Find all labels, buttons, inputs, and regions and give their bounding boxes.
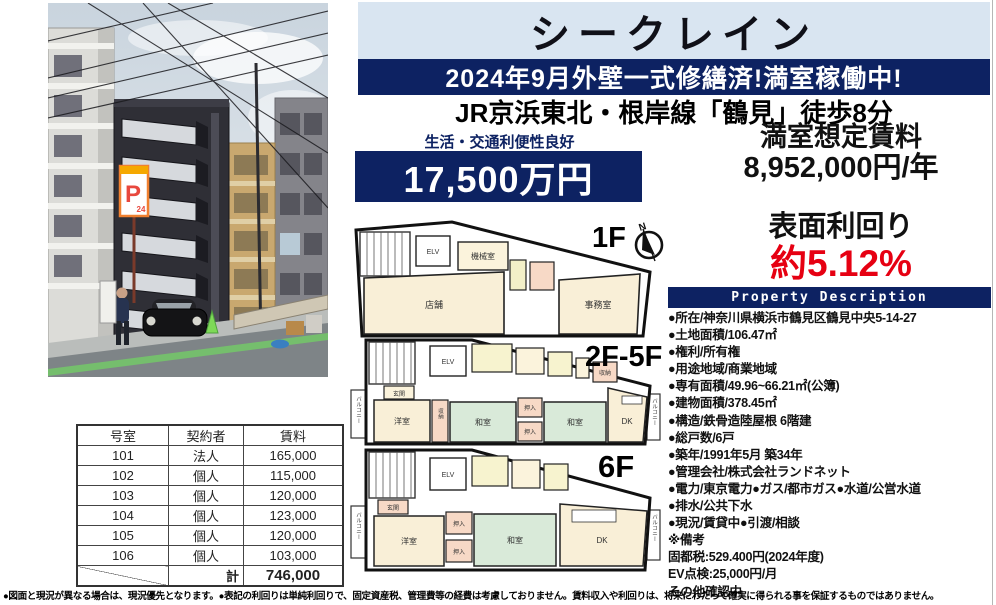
property-item: ●所在/神奈川県横浜市鶴見区鶴見中央5-14-27: [668, 310, 991, 327]
property-item: ●土地面積/106.47㎡: [668, 327, 991, 344]
balcony-left-label: バルコニー: [355, 512, 362, 540]
kitchen-counter: [572, 510, 616, 522]
property-title: シークレイン: [530, 2, 818, 60]
full-rent-value: 8,952,000円/年: [692, 152, 990, 184]
stairwell: [369, 342, 415, 384]
oshiire-1-label: 押入: [453, 520, 465, 528]
property-description-panel: Property Description ●所在/神奈川県横浜市鶴見区鶴見中央5…: [668, 287, 991, 601]
cell-rent: 120,000: [244, 486, 344, 506]
property-item: ●管理会社/株式会社ランドネット: [668, 464, 991, 481]
compass-n-label: N: [638, 222, 648, 234]
building-photo: P 24: [48, 3, 328, 377]
balcony-right-label: バルコニー: [651, 398, 658, 426]
oshiire-2-label: 押入: [524, 428, 536, 436]
table-row: 103 個人 120,000: [77, 486, 343, 506]
western-room-label: 洋室: [394, 416, 410, 426]
property-description-list: ●所在/神奈川県横浜市鶴見区鶴見中央5-14-27 ●土地面積/106.47㎡ …: [668, 308, 991, 601]
property-item: ●専有面積/49.96~66.21㎡(公簿): [668, 378, 991, 395]
closet-tall: [432, 400, 448, 442]
table-row: 102 個人 115,000: [77, 466, 343, 486]
cell-contractor: 個人: [169, 466, 244, 486]
balcony-right-label: バルコニー: [651, 514, 658, 542]
cell-contractor: 個人: [169, 486, 244, 506]
tatami-room-1-label: 和室: [475, 417, 491, 427]
col-header-room: 号室: [77, 425, 169, 446]
property-item: ●築年/1991年5月 築34年: [668, 447, 991, 464]
washroom: [512, 460, 540, 488]
compass-icon: N: [626, 222, 672, 268]
disclaimer-text: ●図面と現況が異なる場合は、現況優先となります。●表記の利回りは単純利回りで、固…: [3, 588, 995, 602]
floorplan-1f-label: 1F: [592, 222, 626, 255]
entrance-label: 玄関: [387, 504, 399, 512]
property-item: ※備考: [668, 532, 991, 549]
page-edge-line: [992, 0, 993, 605]
property-item: ●構造/鉄骨造陸屋根 6階建: [668, 413, 991, 430]
property-item: EV点検:25,000円/月: [668, 566, 991, 583]
tatami-room-2-label: 和室: [567, 417, 583, 427]
dk-room-label: DK: [621, 417, 633, 426]
property-item: 固都税:529.400円(2024年度): [668, 549, 991, 566]
floorplan-6f-label: 6F: [598, 449, 634, 485]
cell-contractor: 法人: [169, 446, 244, 466]
shop-room-label: 店舗: [425, 299, 443, 310]
cell-room: 106: [77, 546, 169, 566]
cell-contractor: 個人: [169, 526, 244, 546]
full-rent-label: 満室想定賃料: [692, 122, 990, 152]
property-item: ●権利/所有権: [668, 344, 991, 361]
cell-rent: 120,000: [244, 526, 344, 546]
property-item: ●総戸数/6戸: [668, 430, 991, 447]
office-room-label: 事務室: [584, 299, 611, 310]
kitchen-counter: [622, 396, 642, 404]
cell-room: 101: [77, 446, 169, 466]
closet-tall-label: 収納: [437, 408, 444, 421]
cell-rent: 115,000: [244, 466, 344, 486]
col-header-rent: 賃料: [244, 425, 344, 446]
property-title-band: シークレイン: [358, 2, 990, 59]
elevator-label: ELV: [442, 359, 455, 366]
cell-room: 102: [77, 466, 169, 486]
stairwell: [369, 452, 415, 498]
property-description-header: Property Description: [668, 287, 991, 308]
floorplan-2f5f-label: 2F-5F: [585, 341, 662, 374]
yield-value: 約5.12%: [692, 244, 990, 285]
renovation-banner: 2024年9月外壁一式修繕済!満室稼働中!: [358, 59, 990, 95]
table-row: 101 法人 165,000: [77, 446, 343, 466]
table-row: 104 個人 123,000: [77, 506, 343, 526]
cell-rent: 165,000: [244, 446, 344, 466]
parking-sign-p-label: P: [125, 181, 141, 208]
elevator-label: ELV: [427, 249, 440, 256]
entrance-label: 玄関: [393, 390, 405, 398]
balcony-left-label: バルコニー: [355, 396, 362, 424]
flyer-page: P 24 シークレイン: [0, 0, 996, 605]
total-value: 746,000: [244, 566, 344, 587]
full-rent-block: 満室想定賃料 8,952,000円/年: [692, 122, 990, 185]
western-room-label: 洋室: [401, 536, 417, 546]
yield-label: 表面利回り: [692, 212, 990, 244]
toilet-room: [544, 464, 568, 490]
table-header-row: 号室 契約者 賃料: [77, 425, 343, 446]
cell-contractor: 個人: [169, 506, 244, 526]
property-item: ●用途地域/商業地域: [668, 361, 991, 378]
toilet-room: [548, 352, 572, 376]
wc-room: [510, 260, 526, 290]
oshiire-1-label: 押入: [524, 404, 536, 412]
diagonal-cell: [77, 566, 169, 587]
cell-rent: 123,000: [244, 506, 344, 526]
machine-room-label: 機械室: [471, 251, 495, 261]
benefit-text: 生活・交通利便性良好: [357, 131, 642, 152]
elevator-label: ELV: [442, 472, 455, 479]
property-item: ●現況/賃貸中●引渡/相談: [668, 515, 991, 532]
tenant-rent-table: 号室 契約者 賃料 101 法人 165,000 102 個人 115,000 …: [76, 424, 344, 587]
closet-room: [530, 262, 554, 290]
bathroom: [472, 344, 512, 372]
table-total-row: 計 746,000: [77, 566, 343, 587]
property-item: ●電力/東京電力●ガス/都市ガス●水道/公営水道: [668, 481, 991, 498]
cell-room: 104: [77, 506, 169, 526]
price-box: 17,500万円: [355, 151, 642, 202]
bathroom: [472, 456, 508, 486]
standing-signboard: [100, 281, 116, 323]
tatami-room-label: 和室: [507, 535, 523, 545]
washroom: [516, 348, 544, 374]
cell-room: 105: [77, 526, 169, 546]
cloud: [128, 20, 268, 56]
cell-contractor: 個人: [169, 546, 244, 566]
dk-room-label: DK: [596, 536, 608, 545]
col-header-contractor: 契約者: [169, 425, 244, 446]
parking-sign-24-label: 24: [137, 205, 146, 214]
renovation-banner-text: 2024年9月外壁一式修繕済!満室稼働中!: [445, 59, 902, 95]
cell-room: 103: [77, 486, 169, 506]
table-row: 106 個人 103,000: [77, 546, 343, 566]
property-item: ●建物面積/378.45㎡: [668, 395, 991, 412]
total-label: 計: [169, 566, 244, 587]
property-item: ●排水/公共下水: [668, 498, 991, 515]
table-row: 105 個人 120,000: [77, 526, 343, 546]
price-amount: 17,500万円: [403, 151, 593, 203]
yield-block: 表面利回り 約5.12%: [692, 212, 990, 285]
oshiire-2-label: 押入: [453, 548, 465, 556]
cell-rent: 103,000: [244, 546, 344, 566]
stairwell: [360, 232, 410, 276]
